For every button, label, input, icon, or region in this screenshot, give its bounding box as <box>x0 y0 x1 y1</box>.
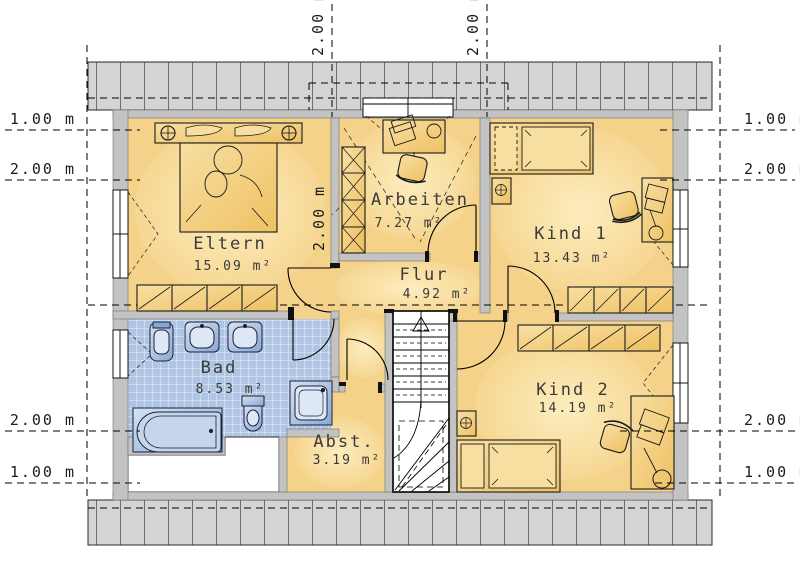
dim-right-3: 2.00 m <box>744 411 800 429</box>
nightstand-kind1 <box>492 178 511 204</box>
roof-strip-bottom <box>88 500 712 545</box>
nightstand-kind2 <box>457 411 476 436</box>
room-area-eltern: 15.09 m² <box>194 259 273 274</box>
room-area-kind1: 13.43 m² <box>533 251 612 266</box>
room-label-kind1: Kind 1 <box>534 224 607 244</box>
bed-kind2 <box>457 440 560 492</box>
window-kind1-right <box>673 190 688 267</box>
room-area-flur: 4.92 m² <box>403 287 472 302</box>
room-area-kind2: 14.19 m² <box>539 401 618 416</box>
dim-right-1: 1.00 m <box>744 110 800 128</box>
window-eltern-left <box>113 190 128 278</box>
desk-kind1 <box>642 178 673 242</box>
dim-left-1: 1.00 m <box>10 110 76 128</box>
room-area-arbeiten: 7.27 m² <box>375 216 444 231</box>
window-kind2-right <box>673 343 688 423</box>
floor-plan-page: Eltern 15.09 m² Arbeiten 7.27 m² Kind 1 … <box>0 0 800 576</box>
room-label-arbeiten: Arbeiten <box>371 190 469 210</box>
window-dormer-arbeiten <box>363 98 453 117</box>
bidet <box>150 322 173 361</box>
room-label-flur: Flur <box>400 265 449 285</box>
dim-top-2: 2.00 m <box>464 0 482 56</box>
window-bad-left <box>113 330 128 378</box>
wardrobe-arbeiten <box>342 147 365 253</box>
stairs <box>393 311 449 492</box>
bed-kind1 <box>490 123 593 174</box>
shower <box>290 381 332 425</box>
room-label-abst: Abst. <box>313 432 374 452</box>
wardrobe-kind1 <box>568 287 673 313</box>
dim-right-2: 2.00 m <box>744 160 800 178</box>
room-label-kind2: Kind 2 <box>536 380 609 400</box>
dim-top-1: 2.00 m <box>309 0 327 56</box>
desk-kind2 <box>631 396 674 489</box>
sink-1 <box>185 322 219 352</box>
room-area-abst: 3.19 m² <box>313 453 382 468</box>
bathtub <box>133 408 222 452</box>
dim-interior-1: 2.00 m <box>310 185 328 251</box>
room-label-eltern: Eltern <box>193 234 266 254</box>
room-area-bad: 8.53 m² <box>196 382 265 397</box>
dim-right-4: 1.00 m <box>744 463 800 481</box>
dim-left-2: 2.00 m <box>10 160 76 178</box>
floor-plan-drawing: Eltern 15.09 m² Arbeiten 7.27 m² Kind 1 … <box>0 0 800 576</box>
room-label-bad: Bad <box>201 358 238 378</box>
dim-left-3: 2.00 m <box>10 411 76 429</box>
wardrobe-kind2 <box>518 325 660 351</box>
dim-left-4: 1.00 m <box>10 463 76 481</box>
sink-2 <box>228 322 262 352</box>
desk-arbeiten <box>383 115 445 160</box>
toilet <box>242 396 264 431</box>
wardrobe-eltern <box>137 285 277 311</box>
